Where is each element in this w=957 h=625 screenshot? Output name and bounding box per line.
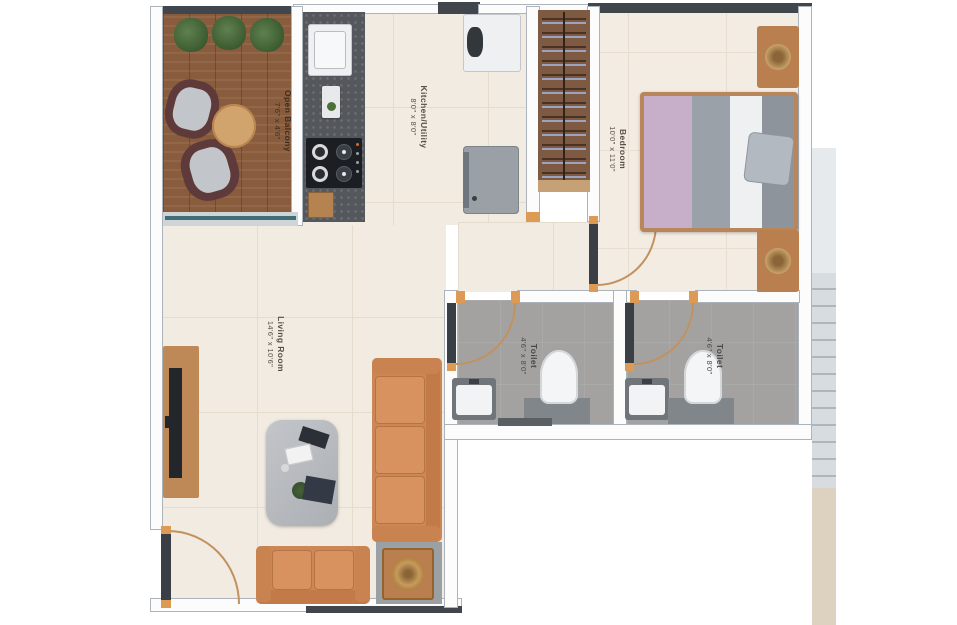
wall-top-bedroom — [588, 3, 812, 13]
side-table — [382, 548, 434, 600]
room-dims: 7'6" x 4'6" — [273, 90, 282, 152]
room-dims: 10'0" x 11'0" — [608, 126, 617, 172]
wall-right — [798, 6, 812, 440]
sofa-armrest — [372, 526, 440, 542]
room-label-bedroom: Bedroom 10'0" x 11'0" — [608, 126, 628, 172]
stove-knob — [356, 152, 359, 155]
room-label-balcony: Open Balcony 7'6" x 4'6" — [273, 90, 293, 152]
tv — [169, 368, 182, 478]
toilet1-ledge — [498, 418, 552, 426]
three-seater-sofa — [372, 358, 442, 542]
toilet1-door-jamb-left — [456, 291, 465, 303]
burner-center — [342, 172, 346, 176]
toilet2-door-jamb-left — [630, 291, 639, 303]
washer-knob — [472, 196, 477, 201]
stove-knob — [356, 161, 359, 164]
room-name: Living Room — [275, 316, 286, 372]
sofa-backrest — [258, 590, 368, 604]
cup — [281, 464, 289, 472]
burner — [336, 166, 352, 182]
wall-top-utility — [438, 2, 480, 14]
balcony-round-table — [212, 104, 256, 148]
plant-icon — [174, 18, 208, 52]
sofa-cushion — [375, 376, 425, 424]
bed-blanket — [644, 96, 692, 228]
sofa-armrest — [372, 358, 440, 374]
wardrobe-base — [538, 180, 590, 192]
double-bed — [640, 92, 798, 232]
fridge-handle — [467, 27, 483, 57]
staircase-landing — [812, 148, 836, 273]
bed-sheet-gray — [692, 96, 730, 228]
washer-edge — [463, 152, 469, 208]
kitchen-sink — [308, 24, 352, 76]
toilet1-door-jamb-right — [511, 291, 520, 303]
gas-stove — [306, 138, 362, 188]
refrigerator — [463, 14, 521, 72]
bedroom-door-leaf — [589, 222, 598, 286]
tv-console — [163, 346, 199, 498]
wall-cap-kitchen — [526, 212, 540, 222]
woven-bowl — [392, 558, 424, 590]
room-name: Bedroom — [617, 126, 628, 172]
water-closet — [540, 350, 578, 404]
room-label-toilet2: Toilet 4'6" x 8'0" — [705, 337, 725, 374]
room-name: Kitchen/Utility — [418, 85, 429, 148]
wall-left-upper — [150, 6, 163, 530]
wall-toilets-bottom — [444, 424, 812, 440]
wardrobe — [538, 10, 590, 182]
sofa-armrest — [355, 546, 370, 602]
toilet1-door-end — [447, 363, 456, 371]
washing-machine — [463, 146, 519, 214]
sink-basin — [314, 31, 346, 69]
sofa-cushion — [375, 426, 425, 474]
decor-bowl — [765, 44, 791, 70]
decor-bowl — [765, 248, 791, 274]
washbasin — [452, 378, 496, 420]
burner — [312, 166, 328, 182]
room-label-living: Living Room 14'6" x 10'6" — [266, 316, 286, 372]
sofa-cushion — [375, 476, 425, 524]
vegetable — [327, 102, 336, 111]
book — [285, 443, 314, 465]
burner-center — [342, 150, 346, 154]
wall-bottom-dark-edge — [306, 606, 462, 613]
washbasin — [625, 378, 669, 420]
pillow — [743, 131, 795, 186]
stove-knob — [356, 170, 359, 173]
basin-faucet — [642, 379, 652, 384]
basin-faucet — [469, 379, 479, 384]
sofa-backrest — [426, 360, 440, 540]
room-dims: 4'6" x 8'0" — [519, 337, 528, 374]
room-dims: 4'6" x 8'0" — [705, 337, 714, 374]
plant-icon — [212, 16, 246, 50]
staircase-base — [812, 488, 836, 625]
burner — [336, 144, 352, 160]
toilet2-door-end — [625, 363, 634, 371]
entry-door-hinge — [161, 526, 171, 534]
two-seater-sofa — [256, 546, 370, 604]
stove-knob — [356, 143, 359, 146]
basin-bowl — [456, 385, 492, 415]
entry-door-leaf — [161, 532, 171, 602]
sofa-cushion — [272, 550, 312, 590]
coffee-table — [266, 420, 338, 526]
wall-top-balcony — [150, 6, 298, 14]
wardrobe-rail — [563, 12, 565, 180]
room-label-kitchen: Kitchen/Utility 8'0" x 8'0" — [409, 85, 429, 148]
sofa-cushion — [314, 550, 354, 590]
room-name: Toilet — [714, 337, 725, 374]
bedroom-door-hinge — [589, 216, 598, 224]
basin-bowl — [629, 385, 665, 415]
floor-plan-canvas: Open Balcony 7'6" x 4'6" Kitchen/Utility… — [0, 0, 957, 625]
room-name: Toilet — [528, 337, 539, 374]
toilet2-door-leaf — [625, 303, 634, 365]
room-dims: 8'0" x 8'0" — [409, 85, 418, 148]
entry-door-jamb — [161, 600, 171, 608]
staircase-steps — [812, 273, 836, 488]
nightstand — [757, 230, 799, 292]
chair-cushion — [186, 144, 235, 197]
sofa-armrest — [256, 546, 271, 602]
bedroom-door-jamb — [589, 284, 598, 292]
balcony-slider-glass — [165, 216, 296, 220]
room-label-toilet1: Toilet 4'6" x 8'0" — [519, 337, 539, 374]
toilet1-door-leaf — [447, 303, 456, 365]
room-name: Open Balcony — [282, 90, 293, 152]
cutting-board — [322, 86, 340, 118]
plant-icon — [250, 18, 284, 52]
toilet2-door-jamb-right — [689, 291, 698, 303]
tray — [302, 476, 336, 505]
burner — [312, 144, 328, 160]
tv-stand — [165, 416, 170, 428]
nightstand — [757, 26, 799, 88]
wood-tray — [308, 192, 334, 218]
room-dims: 14'6" x 10'6" — [266, 316, 275, 372]
chair-cushion — [169, 84, 214, 133]
